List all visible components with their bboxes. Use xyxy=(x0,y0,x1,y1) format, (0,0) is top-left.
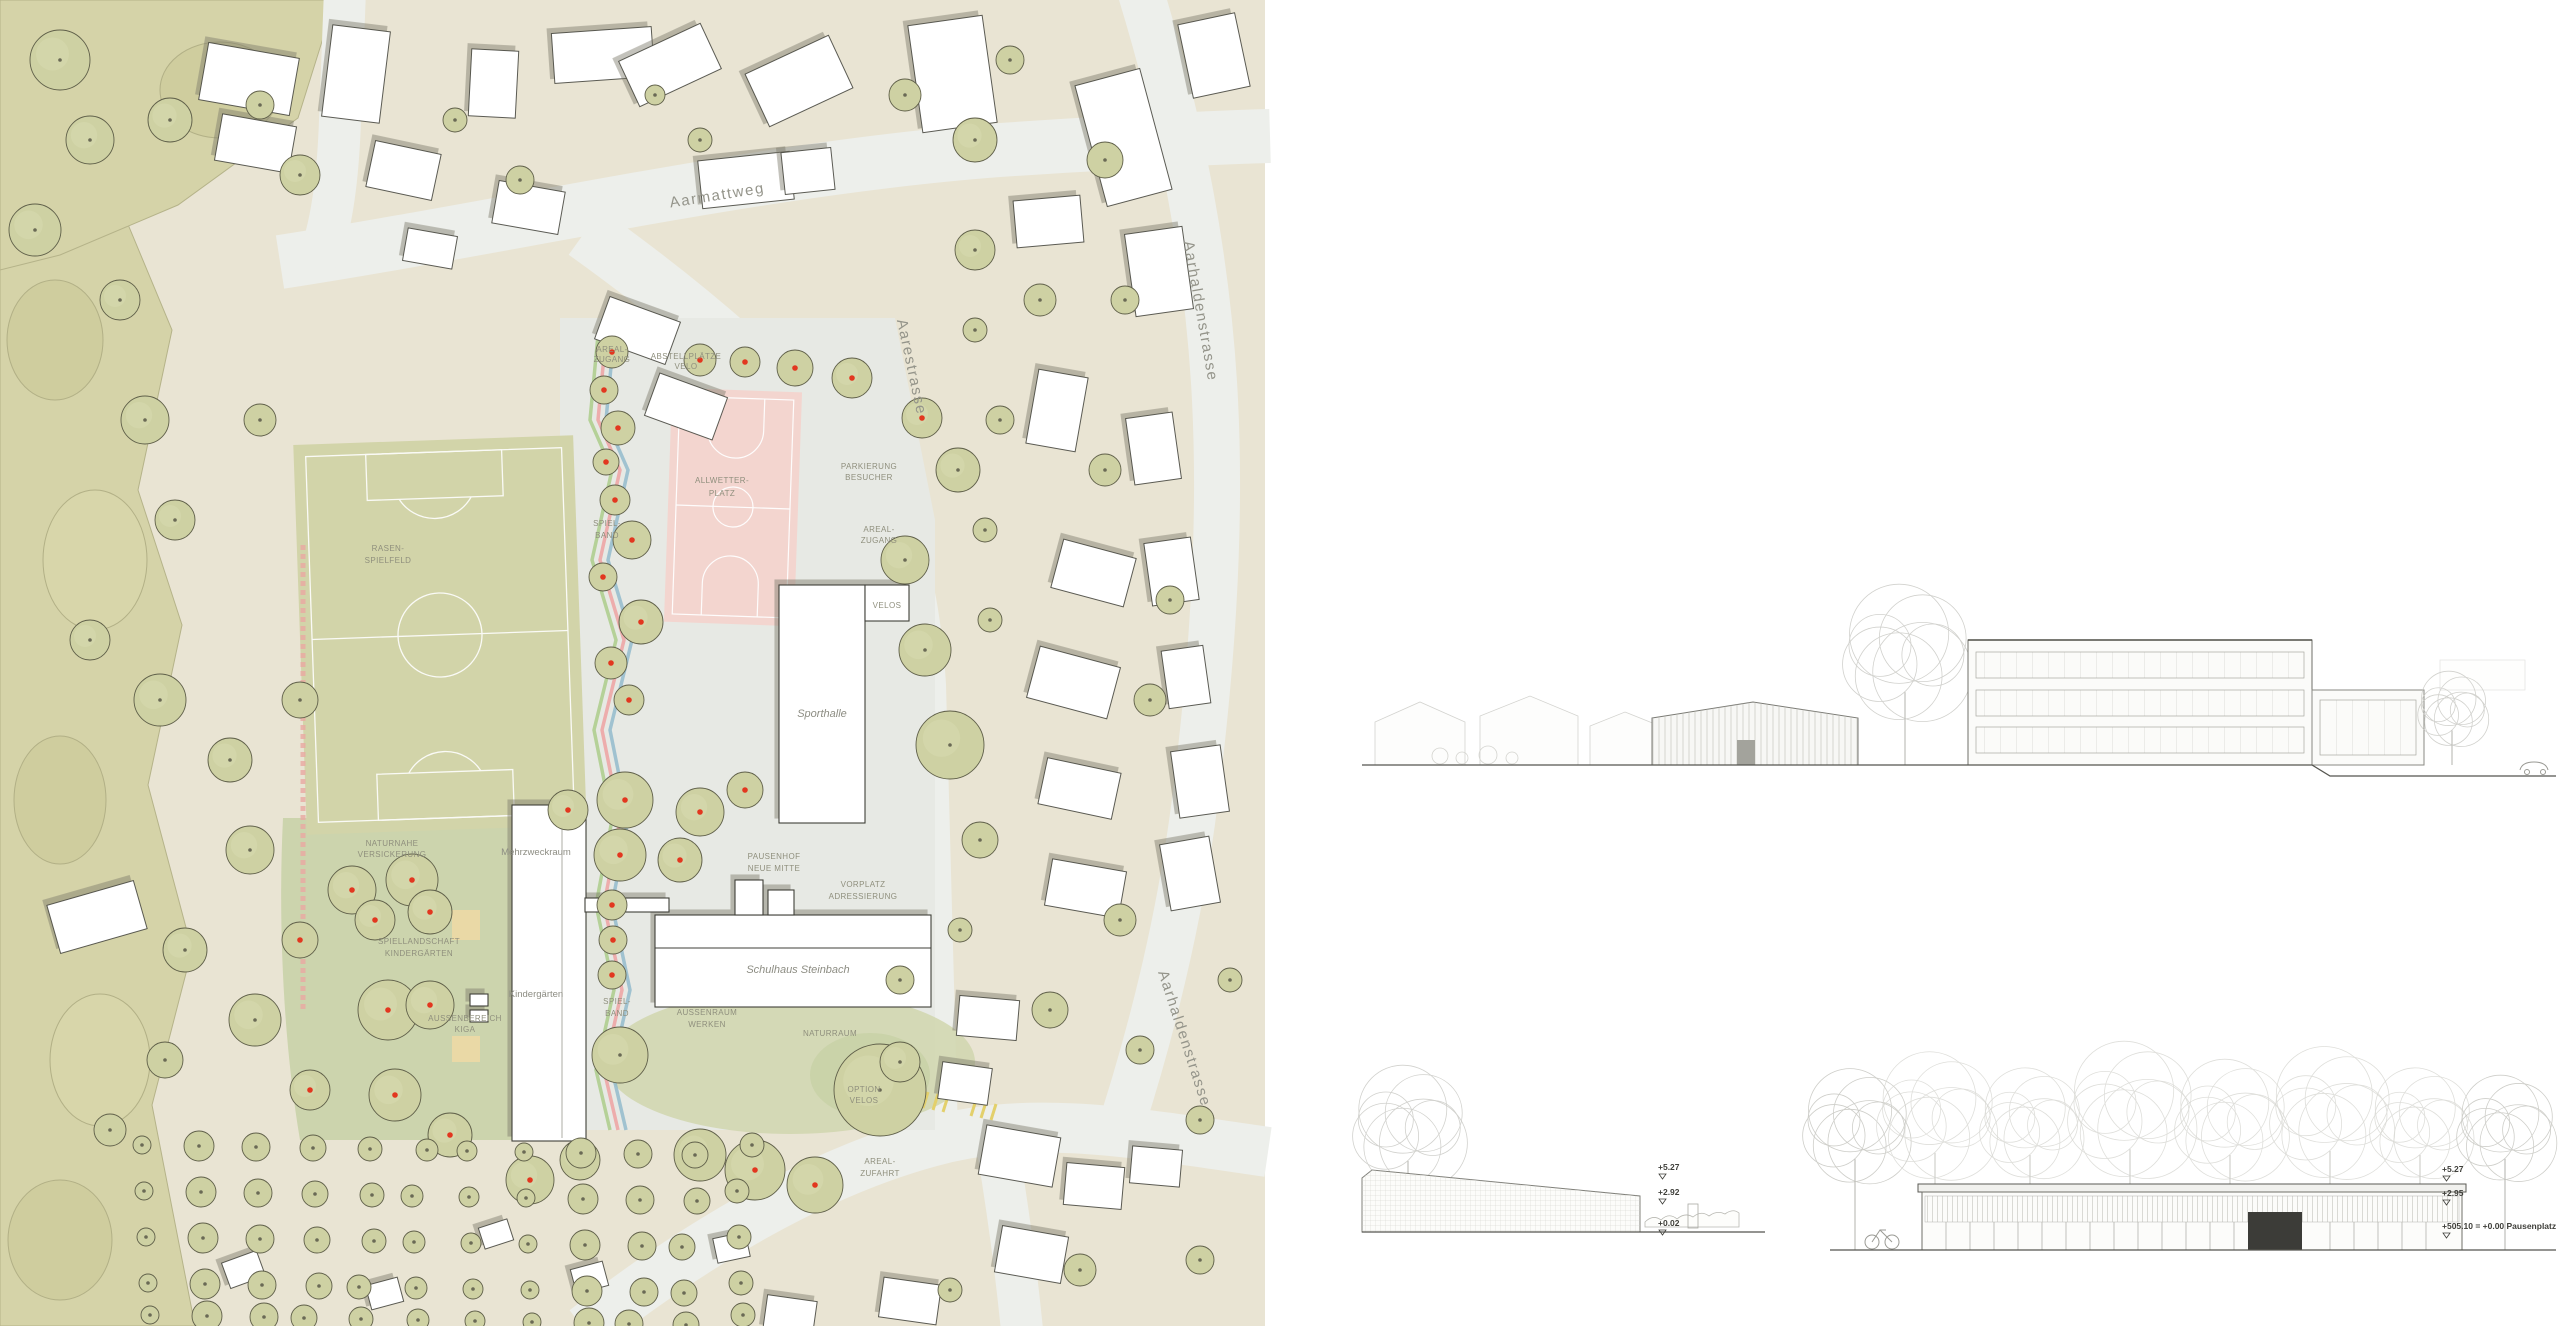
tree xyxy=(190,1269,220,1299)
tree xyxy=(407,1309,429,1326)
tree xyxy=(443,108,467,132)
label-spielband: SPIEL- xyxy=(593,519,621,528)
tree xyxy=(996,46,1024,74)
label-parkierung-besucher: PARKIERUNG xyxy=(841,462,897,471)
site-drawing: Aarmattweg Aarestrasse Aarhaldenstrasse … xyxy=(0,0,2560,1326)
elev-mark-ridge: +5.27 xyxy=(1658,1162,1680,1172)
label-versickerung: NATURNAHE xyxy=(366,839,419,848)
tree xyxy=(1126,1036,1154,1064)
label-allwetterplatz: PLATZ xyxy=(709,489,735,498)
label-spielband-2: BAND xyxy=(605,1009,629,1018)
elevation-bottom-left: +5.27 +2.92 +0.02 xyxy=(1353,1065,1765,1235)
tree xyxy=(973,518,997,542)
tree xyxy=(916,711,984,779)
tree xyxy=(302,1181,328,1207)
tree xyxy=(9,204,61,256)
tree xyxy=(669,1234,695,1260)
tree xyxy=(280,155,320,195)
tree xyxy=(548,790,588,830)
tree xyxy=(148,98,192,142)
house xyxy=(908,15,997,132)
tree xyxy=(731,1303,755,1326)
tree xyxy=(1111,286,1139,314)
bicycle xyxy=(1865,1230,1899,1249)
tree xyxy=(186,1177,216,1207)
label-kindergaerten: Kindergärten xyxy=(509,989,563,1000)
elevation-bottom-right: +5.27 +2.95 +505.10 = +0.00 Pausenplatz xyxy=(1803,1041,2557,1250)
ground-line xyxy=(1362,765,2556,776)
label-allwetterplatz: ALLWETTER- xyxy=(695,476,749,485)
label-vorplatz: VORPLATZ xyxy=(841,880,886,889)
elevation-tree xyxy=(1843,584,1972,765)
tree xyxy=(300,1135,326,1161)
tree xyxy=(787,1157,843,1213)
label-schulhaus: Schulhaus Steinbach xyxy=(746,964,849,976)
tree xyxy=(459,1187,479,1207)
tree xyxy=(70,620,110,660)
tree xyxy=(592,1027,648,1083)
tree xyxy=(515,1143,533,1161)
tree xyxy=(628,1232,656,1260)
tree xyxy=(1024,284,1056,316)
label-aussenraum-werken: AUSSENRAUM xyxy=(677,1008,737,1017)
tree xyxy=(250,1303,278,1326)
label-velo: VELO xyxy=(675,362,698,371)
tree xyxy=(730,347,760,377)
tree xyxy=(645,85,665,105)
label-sporthalle: Sporthalle xyxy=(797,708,847,720)
tree xyxy=(566,1138,596,1168)
tree xyxy=(141,1306,159,1324)
tree xyxy=(682,1142,708,1168)
tree xyxy=(948,918,972,942)
house xyxy=(1129,1146,1182,1187)
tree xyxy=(899,624,951,676)
tree xyxy=(594,829,646,881)
tree xyxy=(570,1230,600,1260)
tree xyxy=(1156,586,1184,614)
tree xyxy=(100,280,140,320)
tree xyxy=(1104,904,1136,936)
tree xyxy=(506,166,534,194)
label-areal-zufahrt: ZUFAHRT xyxy=(860,1169,900,1178)
elev-mark-pausenplatz: +505.10 = +0.00 Pausenplatz xyxy=(2442,1221,2556,1231)
elev-mark-eave: +2.92 xyxy=(1658,1187,1680,1197)
tree xyxy=(729,1271,753,1295)
elev-mark-ground: +0.02 xyxy=(1658,1218,1680,1228)
tree xyxy=(188,1223,218,1253)
house xyxy=(468,49,518,118)
shed-hatched-facade xyxy=(1362,1170,1640,1232)
tree xyxy=(139,1274,157,1292)
label-mehrzweckraum: Mehrzweckraum xyxy=(501,847,571,858)
tree xyxy=(242,1133,270,1161)
tree xyxy=(688,128,712,152)
tree xyxy=(727,1225,751,1249)
tree xyxy=(282,682,318,718)
competition-board: Aarmattweg Aarestrasse Aarhaldenstrasse … xyxy=(0,0,2560,1326)
car xyxy=(2520,762,2548,775)
tree xyxy=(290,1070,330,1110)
tree xyxy=(936,448,980,492)
tree xyxy=(1218,968,1242,992)
tree xyxy=(1032,992,1068,1028)
elev-long-building xyxy=(1918,1184,2466,1250)
elevation-marks-left: +5.27 +2.92 +0.02 xyxy=(1658,1162,1680,1235)
tree xyxy=(1064,1254,1096,1286)
tree xyxy=(568,1184,598,1214)
label-velos: VELOS xyxy=(873,601,902,610)
tree xyxy=(408,890,452,934)
tree xyxy=(740,1133,764,1157)
tree xyxy=(880,1042,920,1082)
tree xyxy=(463,1279,483,1299)
tree xyxy=(595,647,627,679)
label-parkierung-besucher: BESUCHER xyxy=(845,473,893,482)
tree xyxy=(362,1229,386,1253)
tree xyxy=(184,1131,214,1161)
tree xyxy=(405,1277,427,1299)
tree xyxy=(955,230,995,270)
house xyxy=(1013,195,1084,248)
label-vorplatz: ADRESSIERUNG xyxy=(829,892,898,901)
tree xyxy=(66,116,114,164)
tree xyxy=(517,1189,535,1207)
tree xyxy=(282,922,318,958)
tree xyxy=(369,1069,421,1121)
tree xyxy=(1134,684,1166,716)
tree xyxy=(246,1225,274,1253)
tree xyxy=(597,890,627,920)
label-spielband: BAND xyxy=(595,531,619,540)
house xyxy=(1171,745,1230,818)
tree xyxy=(886,966,914,994)
label-pausenhof: NEUE MITTE xyxy=(748,864,800,873)
tree xyxy=(349,1307,373,1326)
label-rasenspielfeld: SPIELFELD xyxy=(365,556,412,565)
tree xyxy=(593,449,619,475)
tree xyxy=(121,396,169,444)
entrance xyxy=(2248,1212,2302,1250)
tree xyxy=(134,674,186,726)
tree xyxy=(403,1231,425,1253)
tree xyxy=(598,961,626,989)
tree xyxy=(1089,454,1121,486)
tree xyxy=(465,1311,485,1326)
football-field xyxy=(293,435,586,835)
tree xyxy=(614,685,644,715)
label-rasenspielfeld: RASEN- xyxy=(372,544,405,553)
tree xyxy=(832,358,872,398)
label-areal-zugang-2: AREAL- xyxy=(863,525,894,534)
tree xyxy=(589,563,617,591)
site-plan: Aarmattweg Aarestrasse Aarhaldenstrasse … xyxy=(0,0,1270,1326)
label-areal-zugang: AREAL- xyxy=(596,345,627,354)
tree xyxy=(962,822,998,858)
tree xyxy=(360,1183,384,1207)
tree xyxy=(978,608,1002,632)
label-aussenbereich-kiga: KIGA xyxy=(455,1025,476,1034)
tree xyxy=(671,1280,697,1306)
tree xyxy=(676,788,724,836)
label-versickerung: VERSICKERUNG xyxy=(358,850,427,859)
tree xyxy=(306,1273,332,1299)
tree xyxy=(727,772,763,808)
label-areal-zufahrt: AREAL- xyxy=(864,1157,895,1166)
tree xyxy=(889,79,921,111)
tree xyxy=(133,1136,151,1154)
tree xyxy=(461,1233,481,1253)
tree xyxy=(725,1179,749,1203)
house xyxy=(1063,1163,1124,1210)
elev-school xyxy=(1968,640,2424,765)
tree xyxy=(457,1141,477,1161)
label-spiellandschaft: SPIELLANDSCHAFT xyxy=(378,937,460,946)
label-aussenraum-werken: WERKEN xyxy=(688,1020,726,1029)
tree xyxy=(155,500,195,540)
house xyxy=(956,995,1019,1040)
tree xyxy=(519,1235,537,1253)
tree xyxy=(208,738,252,782)
tree xyxy=(226,826,274,874)
tree xyxy=(244,404,276,436)
house xyxy=(1126,412,1182,485)
label-option-velos: VELOS xyxy=(850,1096,879,1105)
tree xyxy=(624,1140,652,1168)
tree xyxy=(246,91,274,119)
tree xyxy=(572,1276,602,1306)
elevation-top xyxy=(1362,584,2556,776)
house xyxy=(781,148,835,195)
elev-mark-parapet: +2.95 xyxy=(2442,1188,2464,1198)
tree xyxy=(355,900,395,940)
tree xyxy=(192,1301,222,1326)
tree xyxy=(597,772,653,828)
tree xyxy=(684,1188,710,1214)
tree xyxy=(163,928,207,972)
tree xyxy=(658,838,702,882)
tree xyxy=(229,994,281,1046)
label-naturraum: NATURRAUM xyxy=(803,1029,857,1038)
tree xyxy=(358,1137,382,1161)
label-pausenhof: PAUSENHOF xyxy=(748,852,801,861)
house xyxy=(878,1277,941,1325)
tree xyxy=(30,30,90,90)
tree xyxy=(599,926,627,954)
elev-mark-roof: +5.27 xyxy=(2442,1164,2464,1174)
tree xyxy=(953,118,997,162)
tree xyxy=(601,411,635,445)
label-spielband-2: SPIEL- xyxy=(603,997,631,1006)
elev-shed xyxy=(1652,702,1858,765)
tree xyxy=(938,1278,962,1302)
label-aussenbereich-kiga: AUSSENBEREICH xyxy=(428,1014,502,1023)
label-spiellandschaft: KINDERGÄRTEN xyxy=(385,949,453,958)
tree xyxy=(1186,1106,1214,1134)
label-areal-zugang: ZUGANG xyxy=(594,355,631,364)
tree xyxy=(291,1305,317,1326)
tree xyxy=(1087,142,1123,178)
kiga-annex xyxy=(470,994,488,1006)
tree xyxy=(347,1275,371,1299)
tree xyxy=(630,1278,658,1306)
tree xyxy=(626,1186,654,1214)
label-velo: ABSTELLPLÄTZE xyxy=(651,352,722,361)
label-option-velos: OPTION xyxy=(847,1085,880,1094)
tree xyxy=(147,1042,183,1078)
tree xyxy=(244,1179,272,1207)
tree xyxy=(135,1182,153,1200)
label-areal-zugang-2: ZUGANG xyxy=(861,536,898,545)
tree xyxy=(94,1114,126,1146)
tree xyxy=(986,406,1014,434)
tree xyxy=(304,1227,330,1253)
tree xyxy=(1186,1246,1214,1274)
house xyxy=(938,1062,993,1106)
house xyxy=(1161,645,1211,708)
tree xyxy=(777,350,813,386)
tree xyxy=(416,1139,438,1161)
tree xyxy=(521,1281,539,1299)
tree xyxy=(137,1228,155,1246)
tree xyxy=(590,376,618,404)
tree xyxy=(963,318,987,342)
house xyxy=(322,25,391,123)
tree xyxy=(248,1271,276,1299)
tree xyxy=(600,485,630,515)
tree xyxy=(401,1185,423,1207)
tree xyxy=(619,600,663,644)
